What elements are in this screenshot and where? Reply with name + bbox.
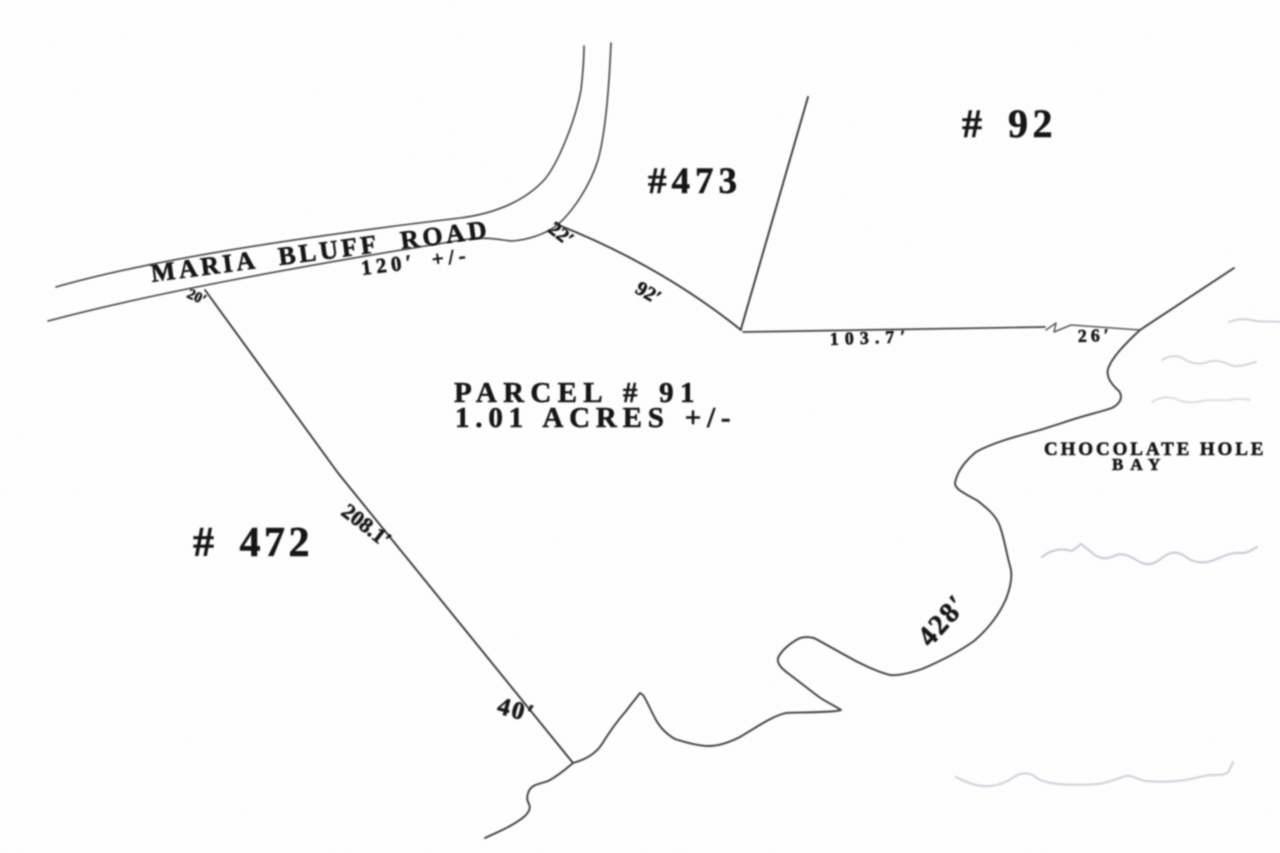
svg-text:# 92: # 92 [962, 101, 1057, 146]
svg-text:# 472: # 472 [193, 520, 313, 566]
svg-text:26′: 26′ [1077, 325, 1113, 346]
svg-text:1.01 ACRES +/-: 1.01 ACRES +/- [455, 402, 736, 434]
svg-text:#473: #473 [648, 161, 742, 202]
svg-text:BAY: BAY [1112, 455, 1167, 474]
svg-text:103.7′: 103.7′ [829, 326, 911, 349]
